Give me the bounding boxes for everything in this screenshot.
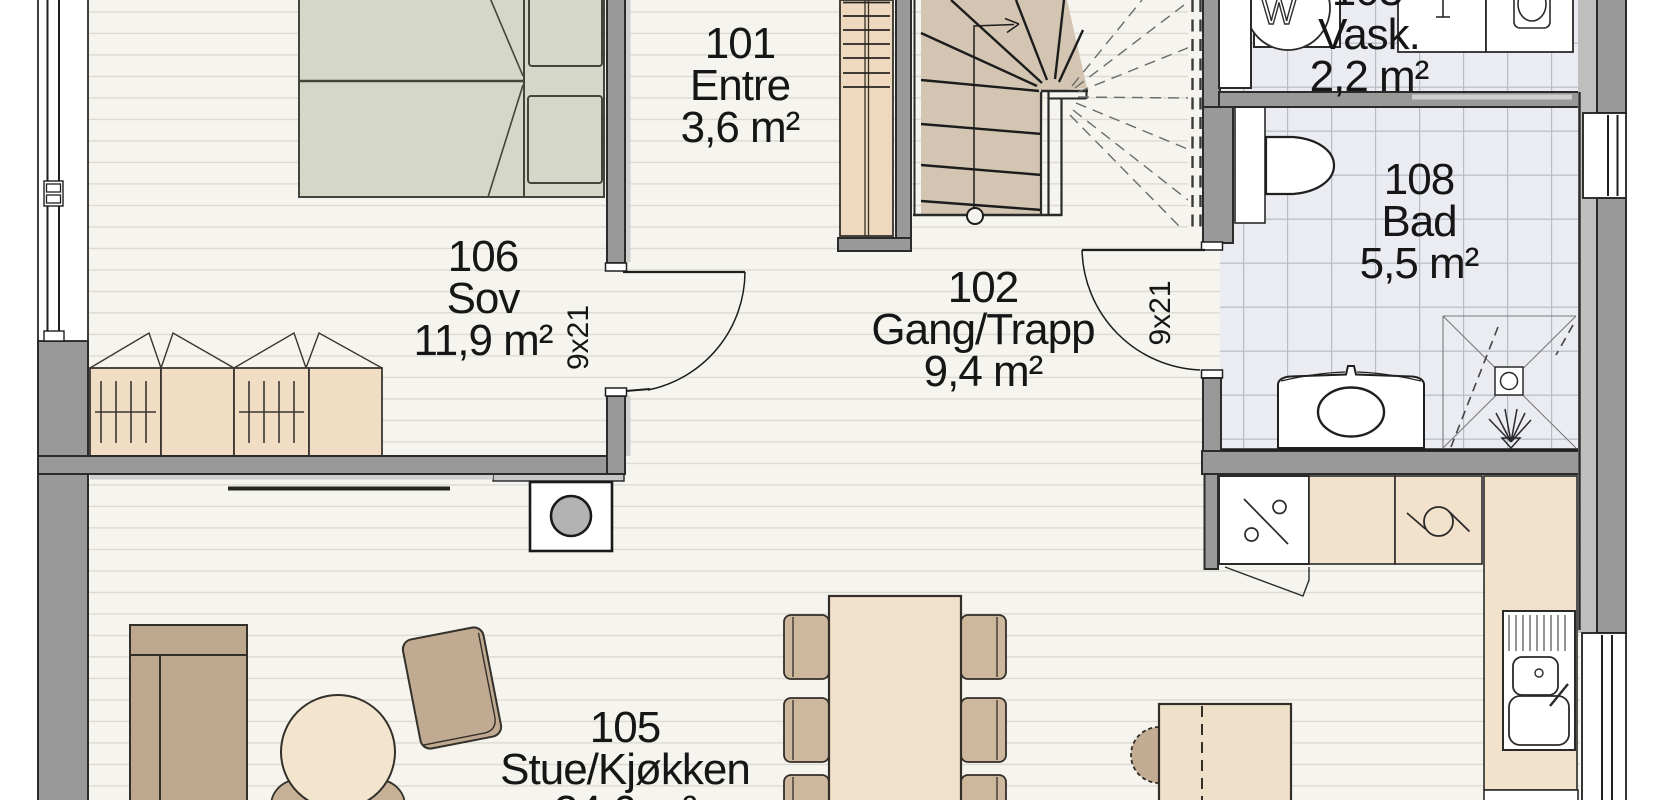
svg-text:9x21: 9x21	[1144, 280, 1177, 345]
svg-text:11,9 m²: 11,9 m²	[414, 316, 553, 365]
svg-text:2,2 m²: 2,2 m²	[1310, 52, 1429, 101]
svg-text:9x21: 9x21	[562, 305, 595, 370]
svg-text:24,6 m²: 24,6 m²	[554, 787, 697, 800]
svg-text:W: W	[1262, 0, 1297, 32]
svg-text:3,6 m²: 3,6 m²	[681, 103, 800, 152]
svg-text:5,5 m²: 5,5 m²	[1360, 239, 1479, 288]
svg-text:9,4 m²: 9,4 m²	[924, 347, 1043, 396]
